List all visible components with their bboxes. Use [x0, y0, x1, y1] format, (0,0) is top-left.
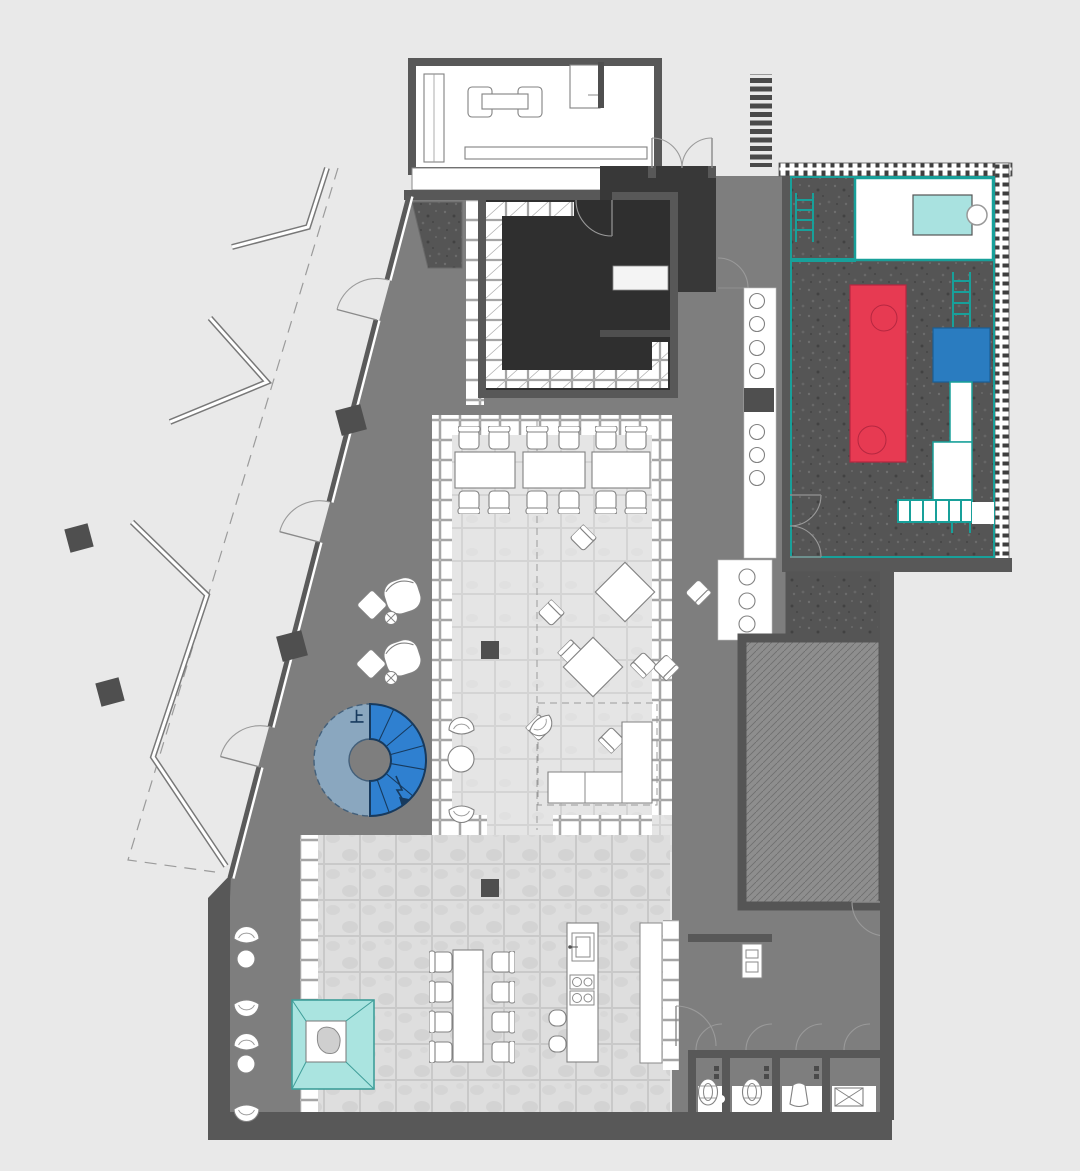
squat-toilet — [743, 1079, 762, 1105]
stool — [750, 364, 765, 379]
interior-column — [481, 879, 499, 897]
media-hatch-strip-left — [486, 202, 502, 388]
stool — [739, 569, 755, 585]
floor-plan: 上 — [0, 0, 1080, 1171]
stool — [750, 294, 765, 309]
kitchen-stool — [549, 1036, 566, 1052]
restroom-wall-stub — [688, 934, 772, 942]
floor-drain — [812, 1096, 820, 1104]
toilet — [790, 1083, 808, 1107]
exterior-screen-wall-2 — [170, 318, 267, 422]
play-box-blue — [933, 328, 990, 382]
tile-strip-left — [432, 415, 452, 852]
stool — [750, 448, 765, 463]
kitchen-stool — [549, 1010, 566, 1026]
media-room — [478, 192, 678, 398]
dining-table — [523, 452, 585, 488]
round-table — [448, 746, 474, 772]
exterior-stair — [750, 74, 772, 167]
exterior-screen-wall-1 — [232, 168, 327, 247]
media-room-floor — [486, 200, 670, 390]
floor-plan-drawing: 上 — [0, 0, 1080, 1171]
play-insulation-right — [995, 163, 1009, 568]
stool — [739, 593, 755, 609]
floor-drain — [762, 1095, 770, 1103]
slide-upper — [950, 382, 972, 442]
shower-box — [835, 1088, 863, 1106]
equipment-room — [788, 574, 880, 640]
play-ball — [967, 205, 987, 225]
pavilion-seat — [292, 1000, 374, 1089]
family-table — [453, 950, 483, 1062]
beanbag — [317, 1027, 340, 1053]
floor-drain — [717, 1095, 725, 1103]
stool — [750, 317, 765, 332]
squat-toilet — [699, 1079, 718, 1105]
stool — [750, 341, 765, 356]
gym-cabinet-right — [570, 65, 600, 108]
family-tile-strip-right — [663, 920, 679, 1070]
media-hatch-strip-corner — [652, 342, 668, 388]
facade-door-1 — [337, 278, 388, 320]
media-niche — [613, 266, 668, 290]
entry-corridor-floor — [716, 176, 782, 290]
planter-column — [64, 523, 93, 552]
media-hatch-strip-top — [502, 202, 574, 216]
bench-column — [744, 388, 774, 412]
stair-up-label: 上 — [350, 710, 364, 726]
media-wall-stub — [600, 330, 670, 337]
stool — [739, 616, 755, 632]
utility-box — [742, 944, 762, 978]
media-hatch-strip-bottom — [486, 370, 668, 388]
play-divider-wall — [790, 258, 856, 262]
gym-counter — [465, 147, 647, 159]
planter-column — [95, 677, 124, 706]
dining-table — [592, 452, 650, 488]
kids-play-area — [779, 163, 1012, 572]
trampoline — [913, 195, 972, 235]
dining-table — [455, 452, 515, 488]
play-landing — [972, 502, 994, 524]
interior-column — [481, 641, 499, 659]
stool — [750, 425, 765, 440]
round-table — [237, 950, 255, 968]
slide-lower — [933, 442, 972, 502]
kitchen-counter-wall — [640, 923, 662, 1063]
tile-strip-bottom-b — [553, 815, 652, 835]
play-insulation-top — [779, 163, 1012, 176]
round-table — [237, 1055, 255, 1073]
stool — [750, 471, 765, 486]
play-steps — [898, 500, 972, 522]
tile-strip-right — [652, 435, 672, 815]
gym-partition — [598, 62, 604, 108]
spiral-staircase: 上 — [314, 704, 426, 816]
